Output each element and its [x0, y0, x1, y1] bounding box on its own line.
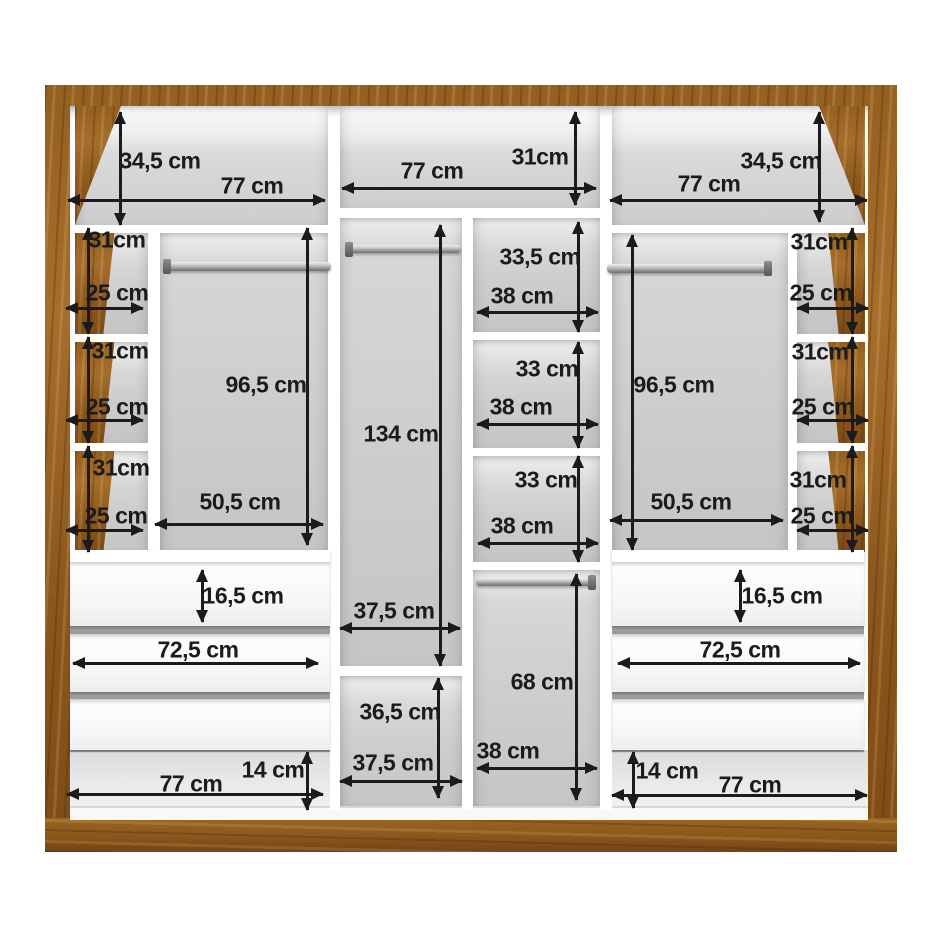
dimension-label: 31cm	[89, 229, 146, 252]
dimension-label: 25 cm	[792, 396, 855, 419]
dimension-label: 16,5 cm	[203, 585, 284, 608]
dimension-label: 31cm	[791, 231, 848, 254]
dimension-label: 77 cm	[678, 173, 741, 196]
dimension-label: 25 cm	[791, 505, 854, 528]
dimension-label: 37,5 cm	[354, 600, 435, 623]
dim-arrow-vertical	[851, 446, 854, 552]
dim-arrow-horizontal	[68, 199, 325, 202]
dimension-label: 77 cm	[719, 774, 782, 797]
dim-arrow-horizontal	[610, 199, 867, 202]
dim-arrow-horizontal	[66, 529, 143, 532]
dim-arrow-horizontal	[477, 767, 597, 770]
dimension-label: 16,5 cm	[742, 585, 823, 608]
dim-arrow-vertical	[577, 222, 580, 332]
dimension-label: 31cm	[790, 469, 847, 492]
dim-arrow-vertical	[439, 225, 442, 666]
dimension-label: 33 cm	[515, 469, 578, 492]
dimension-label: 25 cm	[86, 282, 149, 305]
dimension-label: 77 cm	[401, 160, 464, 183]
dimension-label: 50,5 cm	[651, 491, 732, 514]
dim-arrow-horizontal	[340, 780, 462, 783]
dimension-label: 38 cm	[491, 285, 554, 308]
dimension-label: 14 cm	[242, 759, 305, 782]
dimension-label: 25 cm	[86, 396, 149, 419]
dim-arrow-horizontal	[342, 187, 596, 190]
dim-arrow-horizontal	[155, 523, 323, 526]
dimension-label: 96,5 cm	[226, 374, 307, 397]
dimension-label: 38 cm	[477, 740, 540, 763]
dim-arrow-horizontal	[477, 311, 598, 314]
dimension-label: 31cm	[92, 340, 149, 363]
dim-arrow-horizontal	[478, 542, 598, 545]
dim-arrow-vertical	[306, 752, 309, 810]
dim-arrow-horizontal	[797, 307, 868, 310]
wardrobe-dimension-diagram: 34,5 cm77 cm77 cm31cm34,5 cm77 cm31cm25 …	[0, 0, 940, 940]
dimension-label: 31cm	[792, 341, 849, 364]
dimension-label: 72,5 cm	[158, 639, 239, 662]
dimension-label: 25 cm	[85, 505, 148, 528]
dim-arrow-vertical	[87, 337, 90, 443]
dimension-label: 77 cm	[221, 175, 284, 198]
dimension-label: 134 cm	[363, 423, 438, 446]
dim-arrow-horizontal	[477, 423, 598, 426]
dimension-label: 96,5 cm	[634, 374, 715, 397]
dimension-label: 14 cm	[636, 760, 699, 783]
dimension-label: 38 cm	[490, 396, 553, 419]
dimension-label: 77 cm	[160, 773, 223, 796]
dimension-label: 34,5 cm	[120, 150, 201, 173]
dim-arrow-vertical	[87, 446, 90, 552]
dimension-label: 33,5 cm	[500, 246, 581, 269]
dimension-label: 37,5 cm	[353, 752, 434, 775]
dimension-label: 72,5 cm	[700, 639, 781, 662]
dim-arrow-vertical	[574, 112, 577, 205]
dimension-label: 31cm	[512, 146, 569, 169]
dimension-label: 25 cm	[790, 282, 853, 305]
dimension-label: 34,5 cm	[741, 150, 822, 173]
dimension-label: 38 cm	[491, 515, 554, 538]
dimension-label: 36,5 cm	[360, 701, 441, 724]
dim-arrow-vertical	[632, 752, 635, 808]
dimension-label: 50,5 cm	[200, 491, 281, 514]
dimension-label: 31cm	[93, 457, 150, 480]
dimension-label: 68 cm	[511, 671, 574, 694]
dim-arrow-horizontal	[66, 307, 143, 310]
dim-arrow-vertical	[851, 337, 854, 443]
dim-arrow-horizontal	[797, 529, 868, 532]
dim-arrow-horizontal	[340, 627, 460, 630]
dimension-label: 33 cm	[516, 358, 579, 381]
dim-arrow-horizontal	[610, 519, 783, 522]
dimension-annotations: 34,5 cm77 cm77 cm31cm34,5 cm77 cm31cm25 …	[0, 0, 940, 940]
